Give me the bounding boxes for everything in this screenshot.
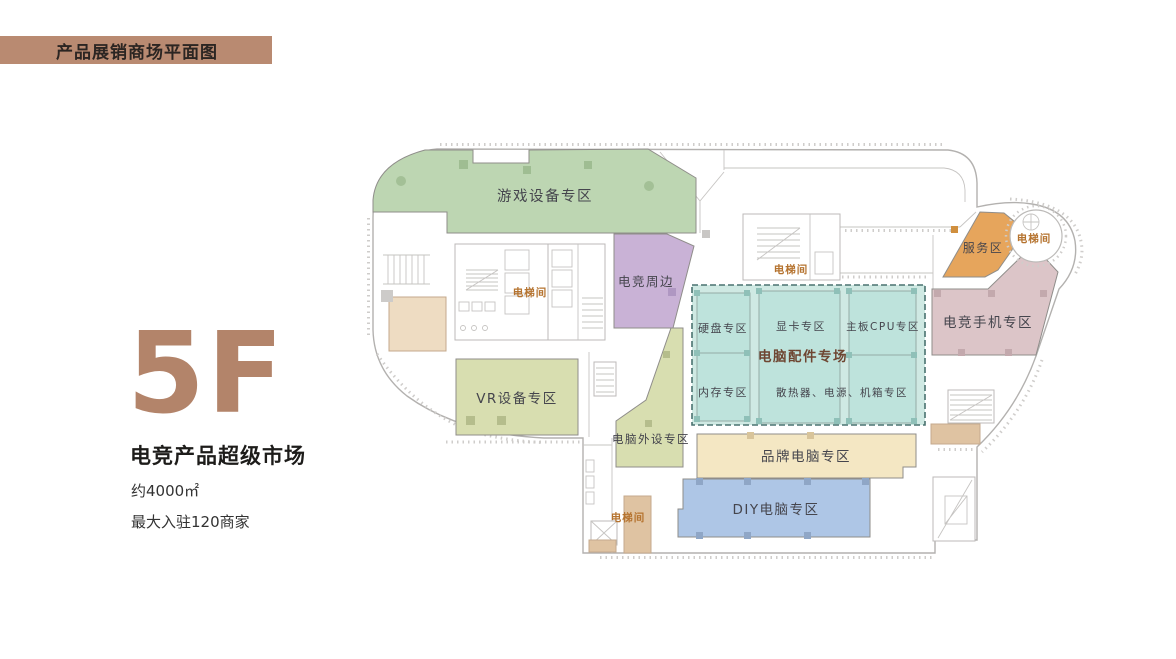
zone-pc-parts-col3 (849, 291, 916, 423)
label-service: 服务区 (963, 240, 1004, 255)
label-elevator-top: 电梯间 (774, 263, 809, 276)
label-ram: 内存专区 (698, 385, 748, 399)
label-gpu: 显卡专区 (776, 319, 826, 333)
floor-plan: 游戏设备专区 电竞周边 VR设备专区 电脑外设专区 硬盘专区 显卡专区 主板CP… (0, 0, 1176, 659)
room-tan-small (589, 540, 616, 552)
label-elevator-circle: 电梯间 (1017, 232, 1052, 245)
label-mainboard-cpu: 主板CPU专区 (846, 320, 920, 333)
label-esports-phone: 电竞手机专区 (943, 314, 1033, 331)
room-elevator-mid (624, 496, 651, 553)
zone-pc-parts-col1 (697, 293, 750, 421)
room-beige-left (389, 297, 446, 351)
label-computer-peripheral: 电脑外设专区 (612, 432, 690, 446)
room-tan-right (931, 424, 980, 444)
label-cooling-psu-case: 散热器、电源、机箱专区 (776, 386, 908, 399)
label-pc-parts-hall: 电脑配件专场 (758, 348, 848, 365)
label-vr-equipment: VR设备专区 (476, 390, 558, 407)
label-diy-pc: DIY电脑专区 (732, 502, 819, 518)
label-game-equipment: 游戏设备专区 (497, 188, 593, 205)
label-esports-peripheral: 电竞周边 (618, 274, 674, 289)
label-elevator-core: 电梯间 (513, 286, 548, 299)
page: 产品展销商场平面图 5F 电竞产品超级市场 约4000㎡ 最大入驻120商家 (0, 0, 1176, 659)
label-hdd: 硬盘专区 (698, 321, 748, 335)
label-elevator-bottom: 电梯间 (611, 511, 646, 524)
label-brand-pc: 品牌电脑专区 (761, 448, 851, 465)
